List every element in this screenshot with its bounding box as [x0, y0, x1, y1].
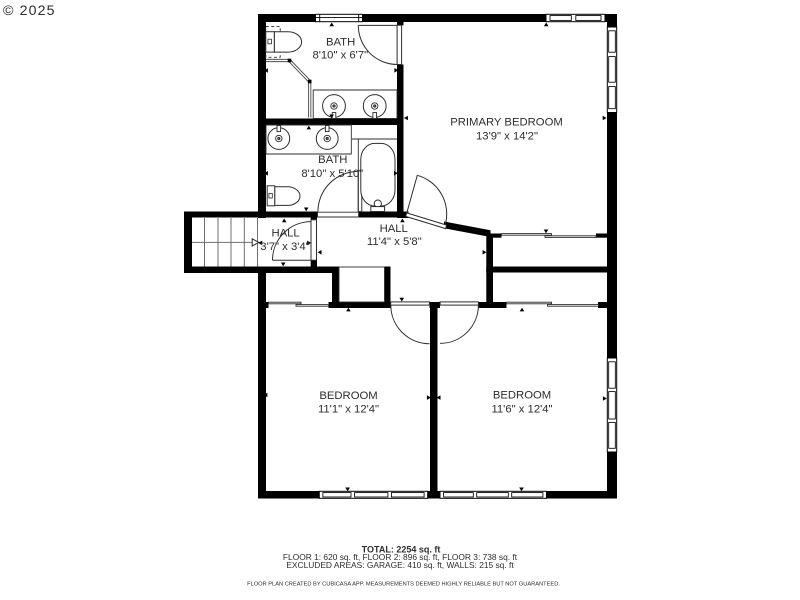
svg-text:BEDROOM: BEDROOM	[319, 390, 377, 402]
svg-text:11'4" x 5'8": 11'4" x 5'8"	[367, 236, 422, 248]
svg-text:© 2025: © 2025	[3, 3, 56, 19]
svg-text:FLOOR PLAN CREATED BY CUBICASA: FLOOR PLAN CREATED BY CUBICASA APP. MEAS…	[247, 581, 560, 587]
svg-text:HALL: HALL	[380, 223, 408, 235]
svg-text:8'10" x 5'10": 8'10" x 5'10"	[301, 168, 363, 180]
svg-text:11'1" x 12'4": 11'1" x 12'4"	[318, 404, 379, 416]
svg-text:11'6" x 12'4": 11'6" x 12'4"	[491, 404, 552, 416]
svg-text:BATH: BATH	[326, 36, 355, 48]
svg-text:8'10" x 6'7": 8'10" x 6'7"	[312, 50, 368, 62]
svg-text:BATH: BATH	[318, 154, 347, 166]
svg-text:EXCLUDED AREAS: GARAGE: 410 sq: EXCLUDED AREAS: GARAGE: 410 sq. ft, WALL…	[286, 560, 514, 570]
svg-text:BEDROOM: BEDROOM	[493, 390, 551, 402]
svg-text:13'9" x 14'2": 13'9" x 14'2"	[476, 131, 538, 143]
svg-text:PRIMARY BEDROOM: PRIMARY BEDROOM	[450, 117, 563, 129]
svg-text:3'7" x 3'4": 3'7" x 3'4"	[260, 241, 309, 253]
svg-text:HALL: HALL	[271, 228, 299, 240]
